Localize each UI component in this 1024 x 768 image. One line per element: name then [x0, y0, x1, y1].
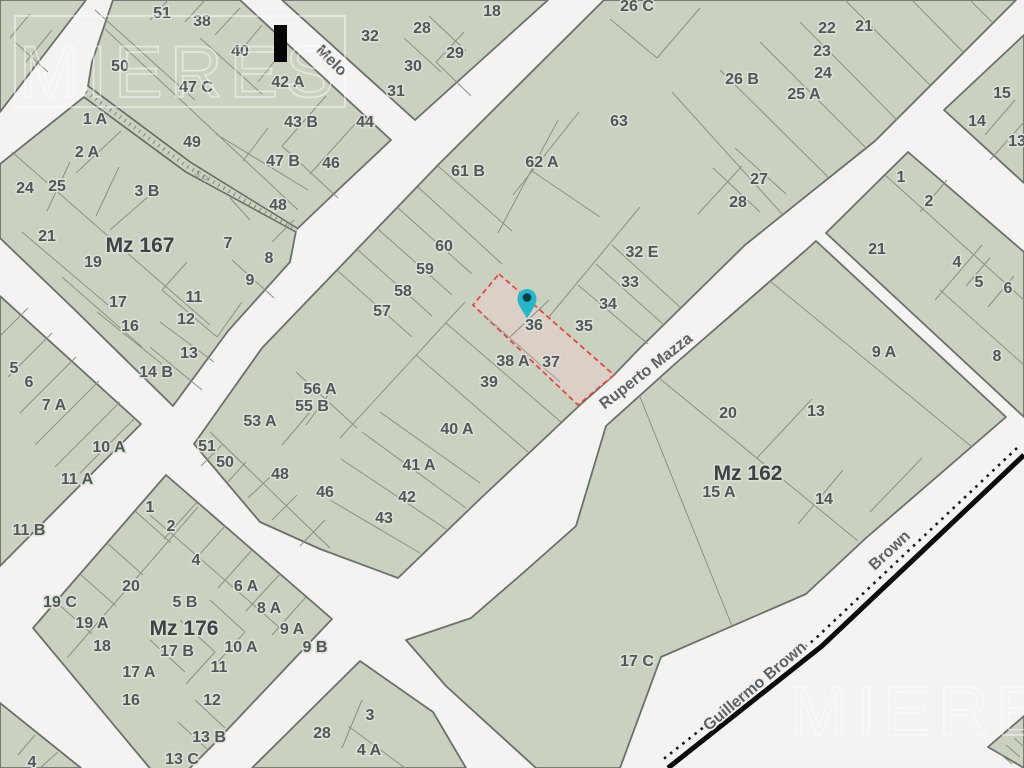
- svg-text:15: 15: [993, 85, 1011, 102]
- svg-text:7: 7: [224, 235, 233, 252]
- svg-text:6: 6: [1004, 280, 1013, 297]
- svg-text:35: 35: [575, 318, 593, 335]
- svg-text:16: 16: [122, 692, 140, 709]
- svg-text:8: 8: [993, 348, 1002, 365]
- svg-text:34: 34: [599, 296, 617, 313]
- svg-text:25 A: 25 A: [787, 86, 821, 103]
- svg-text:14: 14: [968, 113, 986, 130]
- svg-text:18: 18: [483, 3, 501, 20]
- svg-text:58: 58: [394, 283, 412, 300]
- svg-text:11: 11: [186, 289, 203, 306]
- svg-text:3: 3: [366, 707, 375, 724]
- svg-text:17 A: 17 A: [122, 664, 156, 681]
- svg-text:55 B: 55 B: [295, 398, 329, 415]
- svg-text:13 C: 13 C: [165, 751, 199, 768]
- svg-text:14: 14: [815, 491, 833, 508]
- svg-text:48: 48: [269, 197, 287, 214]
- svg-text:13: 13: [1008, 133, 1024, 150]
- svg-text:56 A: 56 A: [303, 381, 337, 398]
- svg-text:4: 4: [192, 552, 201, 569]
- svg-text:60: 60: [435, 238, 453, 255]
- svg-text:25: 25: [48, 178, 66, 195]
- svg-text:17: 17: [109, 294, 127, 311]
- svg-text:11: 11: [211, 659, 228, 676]
- svg-text:2 A: 2 A: [75, 144, 100, 161]
- svg-text:23: 23: [813, 43, 831, 60]
- svg-text:17 B: 17 B: [160, 643, 194, 660]
- svg-text:26 B: 26 B: [725, 71, 759, 88]
- svg-text:4 A: 4 A: [357, 742, 382, 759]
- svg-text:28: 28: [313, 725, 331, 742]
- svg-text:13 B: 13 B: [192, 729, 226, 746]
- svg-text:19 A: 19 A: [75, 615, 109, 632]
- svg-text:4: 4: [28, 754, 37, 768]
- svg-text:3 B: 3 B: [135, 183, 160, 200]
- svg-text:39: 39: [480, 374, 498, 391]
- svg-text:5: 5: [975, 274, 984, 291]
- svg-text:27: 27: [750, 171, 768, 188]
- svg-text:MIERES: MIERES: [19, 32, 341, 113]
- svg-text:51: 51: [153, 5, 171, 22]
- svg-text:30: 30: [404, 58, 422, 75]
- svg-text:26 C: 26 C: [620, 0, 654, 15]
- svg-text:18: 18: [93, 638, 111, 655]
- svg-text:32 E: 32 E: [626, 244, 659, 261]
- svg-text:57: 57: [373, 303, 391, 320]
- svg-text:51: 51: [198, 438, 216, 455]
- svg-text:13: 13: [807, 403, 825, 420]
- svg-text:10 A: 10 A: [224, 639, 258, 656]
- svg-text:9: 9: [246, 272, 255, 289]
- svg-text:12: 12: [203, 692, 221, 709]
- svg-text:19 C: 19 C: [43, 594, 77, 611]
- svg-text:19: 19: [84, 254, 102, 271]
- svg-text:44: 44: [356, 114, 374, 131]
- svg-text:15 A: 15 A: [702, 484, 736, 501]
- svg-text:46: 46: [316, 484, 334, 501]
- svg-text:14 B: 14 B: [139, 364, 173, 381]
- svg-text:9 A: 9 A: [872, 344, 897, 361]
- svg-text:47 B: 47 B: [266, 153, 300, 170]
- svg-text:49: 49: [183, 134, 201, 151]
- svg-text:Mz 176: Mz 176: [150, 617, 219, 640]
- svg-text:38 A: 38 A: [496, 353, 530, 370]
- svg-text:8: 8: [265, 250, 274, 267]
- svg-text:22: 22: [818, 20, 836, 37]
- svg-text:5: 5: [10, 360, 19, 377]
- svg-text:48: 48: [271, 466, 289, 483]
- svg-text:20: 20: [122, 578, 140, 595]
- svg-text:5 B: 5 B: [173, 594, 198, 611]
- svg-text:43: 43: [375, 510, 393, 527]
- svg-text:6 A: 6 A: [234, 578, 259, 595]
- svg-text:29: 29: [446, 45, 464, 62]
- svg-text:11 B: 11 B: [13, 522, 46, 539]
- svg-text:50: 50: [216, 454, 234, 471]
- svg-text:37: 37: [542, 354, 560, 371]
- svg-text:31: 31: [387, 83, 405, 100]
- svg-text:53 A: 53 A: [243, 413, 277, 430]
- svg-text:17 C: 17 C: [620, 653, 654, 670]
- svg-text:1: 1: [897, 169, 906, 186]
- svg-text:16: 16: [121, 318, 139, 335]
- svg-text:21: 21: [868, 241, 886, 258]
- svg-text:4: 4: [953, 254, 962, 271]
- svg-text:9 B: 9 B: [303, 639, 328, 656]
- svg-text:33: 33: [621, 274, 639, 291]
- svg-text:28: 28: [413, 20, 431, 37]
- svg-text:2: 2: [925, 193, 934, 210]
- svg-text:20: 20: [719, 405, 737, 422]
- svg-text:36: 36: [525, 317, 543, 334]
- svg-text:61 B: 61 B: [451, 163, 485, 180]
- svg-text:24: 24: [16, 180, 34, 197]
- svg-text:41 A: 41 A: [402, 457, 436, 474]
- svg-text:2: 2: [167, 518, 176, 535]
- svg-text:8 A: 8 A: [257, 600, 282, 617]
- svg-text:10 A: 10 A: [92, 439, 126, 456]
- svg-text:Mz 167: Mz 167: [106, 234, 175, 257]
- svg-text:6: 6: [25, 374, 34, 391]
- svg-text:32: 32: [361, 28, 379, 45]
- svg-text:7 A: 7 A: [42, 397, 67, 414]
- svg-text:21: 21: [38, 228, 56, 245]
- svg-text:24: 24: [814, 65, 832, 82]
- svg-text:63: 63: [610, 113, 628, 130]
- svg-text:21: 21: [855, 18, 873, 35]
- svg-text:9 A: 9 A: [280, 621, 305, 638]
- svg-text:42: 42: [398, 489, 416, 506]
- svg-text:Mz 162: Mz 162: [714, 462, 783, 485]
- svg-text:40 A: 40 A: [440, 421, 474, 438]
- svg-text:59: 59: [416, 261, 434, 278]
- svg-text:46: 46: [322, 155, 340, 172]
- svg-text:MIERES: MIERES: [790, 672, 1024, 750]
- svg-text:1 A: 1 A: [83, 111, 108, 128]
- svg-text:43 B: 43 B: [284, 114, 318, 131]
- svg-text:28: 28: [729, 194, 747, 211]
- svg-text:12: 12: [177, 311, 195, 328]
- svg-text:62 A: 62 A: [525, 154, 559, 171]
- svg-text:13: 13: [180, 345, 198, 362]
- svg-text:1: 1: [146, 499, 155, 516]
- svg-text:11 A: 11 A: [61, 471, 94, 488]
